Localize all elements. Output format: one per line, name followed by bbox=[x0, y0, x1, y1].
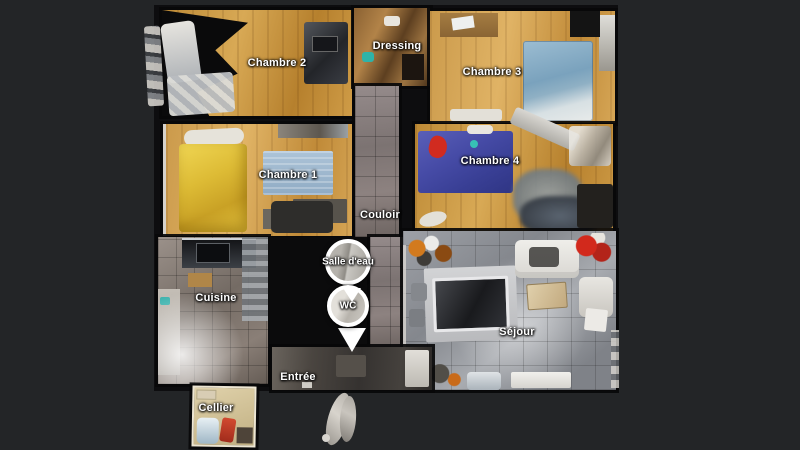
bench bbox=[450, 109, 502, 121]
room-sejour[interactable] bbox=[403, 231, 616, 390]
room-label-chambre-1: Chambre 1 bbox=[259, 169, 318, 181]
dining-table bbox=[432, 276, 510, 333]
tv-cabinet bbox=[511, 372, 571, 388]
pin-wc-pointer-icon bbox=[338, 328, 366, 352]
room-cellier[interactable] bbox=[191, 385, 256, 447]
desk bbox=[304, 22, 348, 84]
oven-door bbox=[196, 243, 230, 263]
coffee-table bbox=[526, 282, 568, 311]
scan-fragment bbox=[611, 330, 619, 388]
room-label-couloir: Couloir bbox=[360, 209, 400, 221]
door bbox=[405, 350, 429, 387]
stair-banister bbox=[316, 390, 362, 448]
room-label-cuisine: Cuisine bbox=[195, 292, 236, 304]
room-label-chambre-2: Chambre 2 bbox=[248, 57, 307, 69]
clutter bbox=[271, 201, 333, 233]
clutter bbox=[569, 126, 611, 166]
room-label-sejour: Séjour bbox=[499, 326, 534, 338]
room-couloir-lower[interactable] bbox=[370, 237, 403, 347]
appliance bbox=[182, 238, 256, 268]
newel-post bbox=[322, 434, 330, 442]
room-label-chambre-3: Chambre 3 bbox=[463, 66, 522, 78]
wall-edge bbox=[403, 245, 406, 355]
pin-salle-deau-pointer-icon bbox=[343, 288, 361, 302]
pin-salle-deau[interactable]: Salle d'eau bbox=[325, 239, 371, 285]
clutter bbox=[599, 15, 615, 71]
clutter bbox=[405, 233, 453, 267]
box bbox=[188, 273, 212, 287]
bed bbox=[523, 41, 593, 121]
room-label-cellier: Cellier bbox=[198, 402, 233, 414]
room-chambre-1[interactable] bbox=[163, 124, 352, 236]
room-cuisine[interactable] bbox=[158, 237, 268, 384]
room-label-entree: Entrée bbox=[280, 371, 315, 383]
chair bbox=[411, 283, 427, 301]
clutter bbox=[160, 297, 170, 305]
counter bbox=[158, 289, 180, 375]
vacuum-cleaner bbox=[219, 417, 237, 443]
sofa-shadow bbox=[529, 247, 559, 267]
room-label-dressing: Dressing bbox=[373, 40, 422, 52]
bed bbox=[179, 144, 247, 232]
room-label-chambre-4: Chambre 4 bbox=[461, 155, 520, 167]
clutter bbox=[384, 16, 400, 26]
shelf bbox=[196, 390, 216, 400]
clutter bbox=[237, 427, 253, 443]
wall-shadow bbox=[570, 11, 600, 37]
shelving bbox=[242, 237, 268, 321]
room-entree[interactable] bbox=[272, 347, 432, 390]
washing-machine bbox=[197, 418, 219, 444]
pin-label-wc: WC bbox=[340, 301, 357, 312]
clutter bbox=[470, 140, 478, 148]
doormat bbox=[336, 355, 366, 377]
room-chambre-4[interactable] bbox=[415, 124, 613, 236]
plaid-blanket bbox=[167, 72, 236, 117]
clutter bbox=[362, 52, 374, 62]
red-chair bbox=[575, 233, 613, 265]
pin-label-salle-deau: Salle d'eau bbox=[322, 257, 374, 268]
pillow bbox=[467, 125, 493, 134]
appliance bbox=[467, 372, 501, 390]
chair bbox=[409, 309, 425, 327]
lamp bbox=[418, 209, 449, 230]
computer-screen bbox=[312, 36, 338, 52]
floorplan-viewer: Chambre 2 Dressing Chambre 3 Chambre 1 C… bbox=[0, 0, 800, 450]
desk bbox=[577, 184, 613, 228]
room-chambre-3[interactable] bbox=[430, 11, 615, 123]
side-table bbox=[584, 308, 608, 332]
wardrobe bbox=[402, 54, 424, 80]
clutter bbox=[278, 124, 348, 138]
